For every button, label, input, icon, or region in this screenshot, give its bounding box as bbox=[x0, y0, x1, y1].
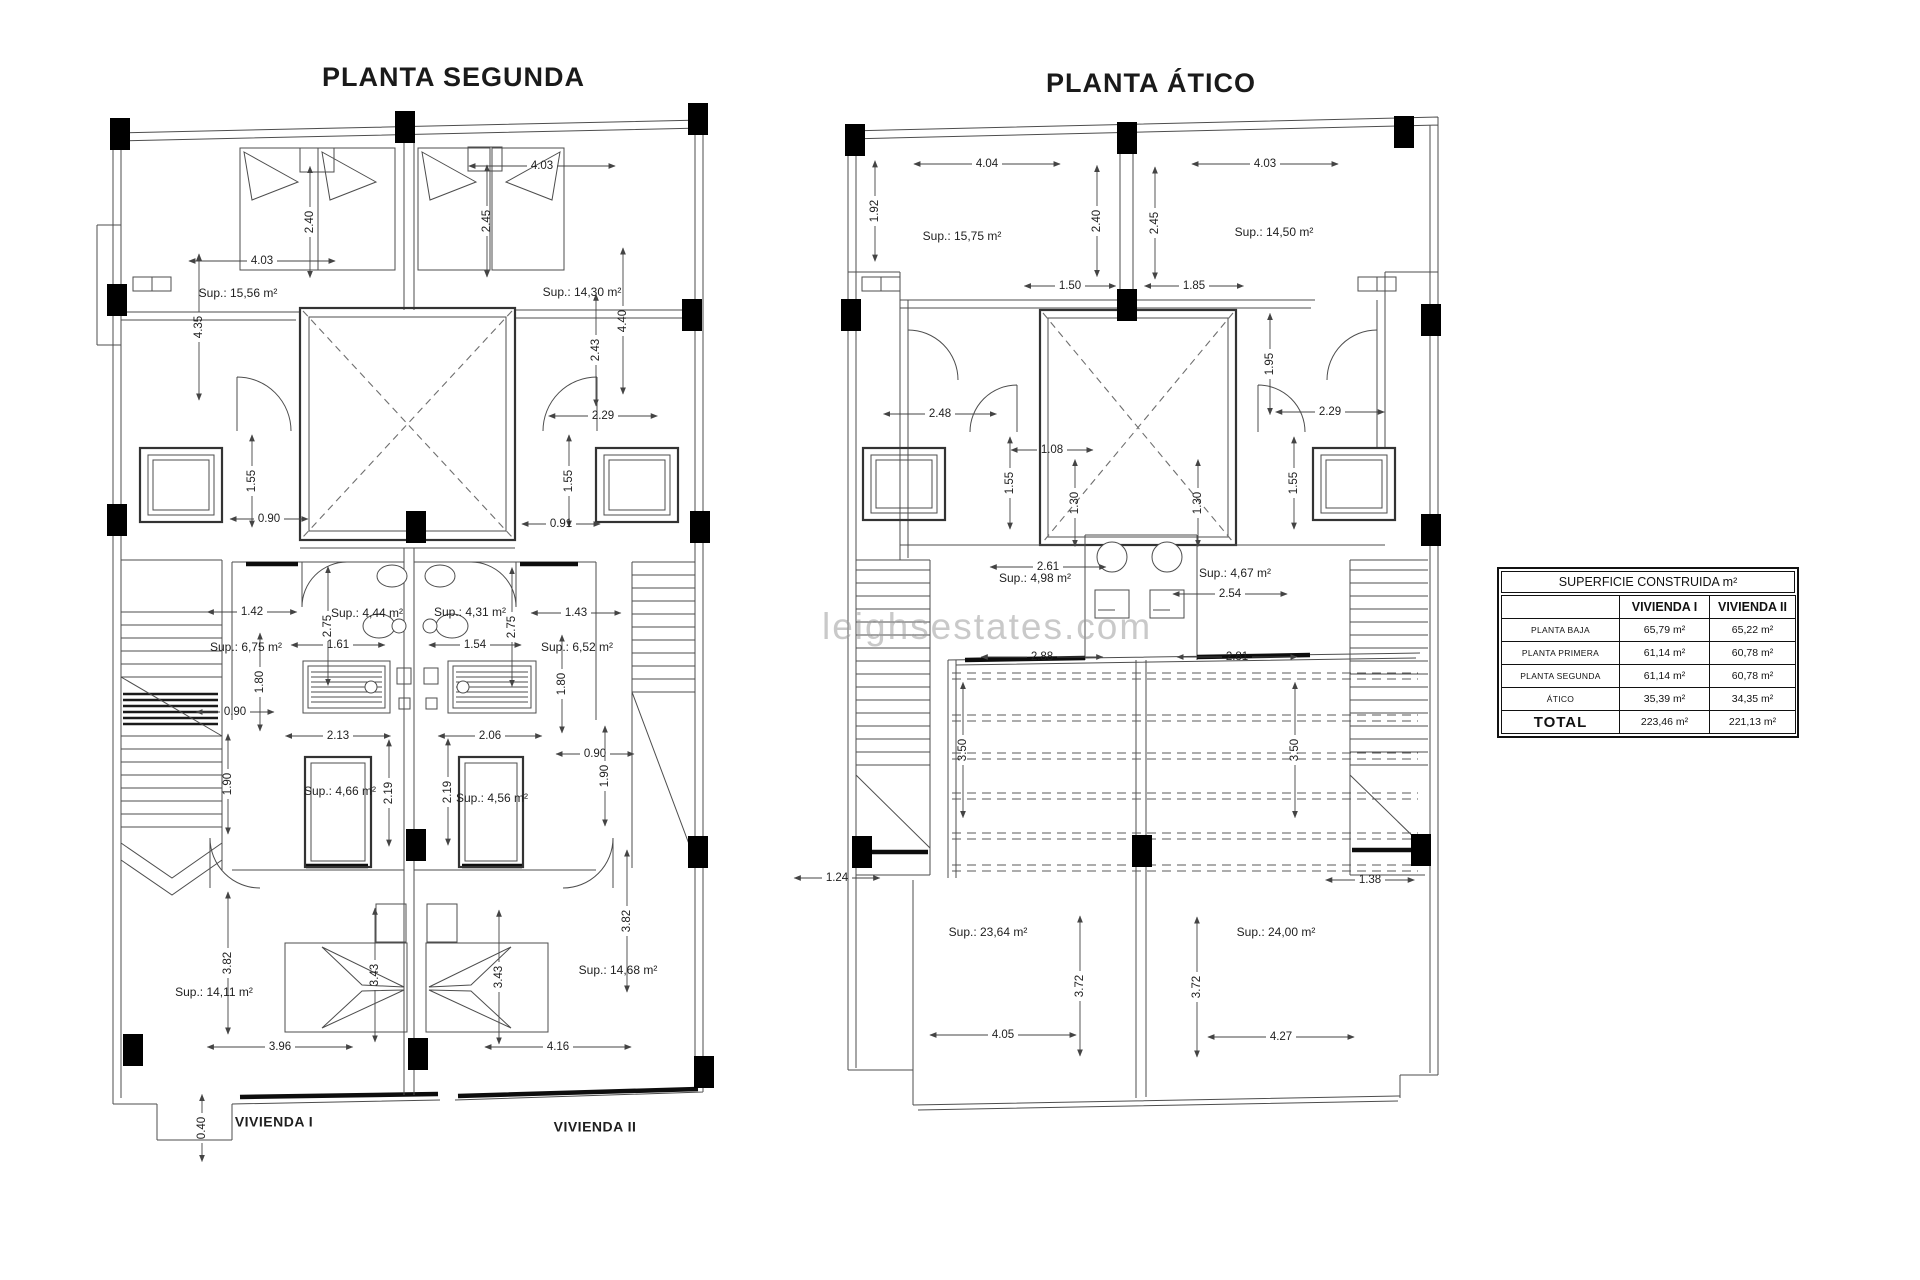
floor-plan-segunda bbox=[96, 92, 725, 1140]
dimension-label: 1.30 bbox=[1069, 460, 1081, 547]
area-label: Sup.: 6,52 m² bbox=[541, 640, 613, 654]
dimension-label: 1.55 bbox=[563, 435, 575, 527]
dimension-label: 1.42 bbox=[207, 606, 296, 618]
svg-text:4.27: 4.27 bbox=[1270, 1031, 1292, 1043]
dimension-label: 4.03 bbox=[1192, 158, 1338, 170]
svg-text:Sup.: 14,30 m²: Sup.: 14,30 m² bbox=[543, 285, 622, 299]
dimension-label: 3.43 bbox=[493, 910, 505, 1043]
svg-text:4.05: 4.05 bbox=[992, 1029, 1014, 1041]
svg-text:1.92: 1.92 bbox=[869, 200, 881, 222]
svg-text:Sup.: 14,50 m²: Sup.: 14,50 m² bbox=[1235, 225, 1314, 239]
dimension-label: 3.50 bbox=[957, 683, 969, 818]
svg-text:1.43: 1.43 bbox=[565, 607, 587, 619]
svg-text:3.50: 3.50 bbox=[1289, 739, 1301, 761]
svg-text:2.48: 2.48 bbox=[929, 408, 951, 420]
svg-text:VIVIENDA I: VIVIENDA I bbox=[235, 1114, 313, 1130]
dimension-label: 1.50 bbox=[1025, 280, 1116, 292]
svg-text:2.40: 2.40 bbox=[304, 211, 316, 233]
dimension-label: 3.50 bbox=[1289, 683, 1301, 818]
header-vivienda-2: VIVIENDA II bbox=[1710, 596, 1796, 619]
dimension-label: 3.72 bbox=[1191, 917, 1203, 1057]
dimension-label: 4.05 bbox=[930, 1029, 1076, 1041]
svg-text:3.43: 3.43 bbox=[493, 966, 505, 988]
area-label: Sup.: 4,56 m² bbox=[456, 791, 528, 805]
dimension-label: 2.54 bbox=[1173, 588, 1287, 600]
stairs-left bbox=[121, 560, 222, 895]
table-header-row: VIVIENDA I VIVIENDA II bbox=[1502, 596, 1796, 619]
svg-text:Sup.: 4,56 m²: Sup.: 4,56 m² bbox=[456, 791, 528, 805]
svg-text:2.88: 2.88 bbox=[1031, 651, 1053, 663]
svg-text:2.06: 2.06 bbox=[479, 730, 501, 742]
svg-text:1.95: 1.95 bbox=[1264, 353, 1276, 375]
table-row: ÁTICO 35,39 m² 34,35 m² bbox=[1502, 688, 1796, 711]
blueprint-canvas: PLANTA SEGUNDA PLANTA ÁTICO bbox=[0, 0, 1920, 1280]
elevator-left bbox=[140, 448, 222, 522]
svg-text:2.45: 2.45 bbox=[1149, 212, 1161, 234]
door-arcs bbox=[908, 330, 1377, 432]
area-label: Sup.: 14,30 m² bbox=[543, 285, 622, 299]
dimension-label: 3.43 bbox=[369, 908, 381, 1041]
svg-text:Sup.: 4,31 m²: Sup.: 4,31 m² bbox=[434, 605, 506, 619]
dimension-label: 3.82 bbox=[222, 892, 234, 1034]
stairs-right bbox=[1350, 560, 1428, 875]
area-label: Sup.: 6,75 m² bbox=[210, 640, 282, 654]
dimension-label: 1.85 bbox=[1145, 280, 1244, 292]
header-empty bbox=[1502, 596, 1620, 619]
svg-text:1.55: 1.55 bbox=[246, 470, 258, 492]
table-row: PLANTA PRIMERA 61,14 m² 60,78 m² bbox=[1502, 642, 1796, 665]
dimension-label: 4.03 bbox=[469, 160, 615, 172]
table-row-total: TOTAL 223,46 m² 221,13 m² bbox=[1502, 711, 1796, 734]
roof-dashed-lines bbox=[952, 673, 1418, 871]
svg-text:3.82: 3.82 bbox=[621, 910, 633, 932]
dimension-label: 4.40 bbox=[617, 248, 629, 394]
columns bbox=[830, 105, 1452, 879]
svg-text:3.50: 3.50 bbox=[957, 739, 969, 761]
svg-text:1.30: 1.30 bbox=[1192, 492, 1204, 514]
svg-text:2.40: 2.40 bbox=[1091, 210, 1103, 232]
svg-text:1.55: 1.55 bbox=[1004, 472, 1016, 494]
dimension-label: 0.40 bbox=[196, 1095, 208, 1162]
area-label: Sup.: 4,66 m² bbox=[304, 784, 376, 798]
name-label: VIVIENDA I bbox=[235, 1114, 313, 1130]
svg-text:0.90: 0.90 bbox=[258, 513, 280, 525]
elevator-left bbox=[863, 448, 945, 520]
dimension-label: 2.48 bbox=[884, 408, 997, 420]
header-vivienda-1: VIVIENDA I bbox=[1620, 596, 1710, 619]
svg-text:1.08: 1.08 bbox=[1041, 444, 1063, 456]
svg-text:4.03: 4.03 bbox=[1254, 158, 1276, 170]
name-label: VIVIENDA II bbox=[554, 1119, 637, 1135]
svg-text:4.03: 4.03 bbox=[531, 160, 553, 172]
svg-text:3.96: 3.96 bbox=[269, 1041, 291, 1053]
shower-right bbox=[448, 661, 536, 713]
table-row: PLANTA BAJA 65,79 m² 65,22 m² bbox=[1502, 619, 1796, 642]
svg-text:2.54: 2.54 bbox=[1219, 588, 1242, 600]
svg-text:Sup.: 24,00 m²: Sup.: 24,00 m² bbox=[1237, 925, 1316, 939]
table-row: PLANTA SEGUNDA 61,14 m² 60,78 m² bbox=[1502, 665, 1796, 688]
dimension-label: 1.90 bbox=[222, 734, 234, 834]
svg-text:1.80: 1.80 bbox=[556, 673, 568, 695]
columns bbox=[96, 92, 725, 1099]
dimension-label: 1.55 bbox=[246, 435, 258, 527]
shower-left bbox=[303, 661, 390, 713]
area-label: Sup.: 14,68 m² bbox=[579, 963, 658, 977]
elevator-right bbox=[1313, 448, 1395, 520]
closet-left bbox=[305, 757, 371, 867]
svg-text:2.29: 2.29 bbox=[1319, 406, 1341, 418]
dimension-label: 4.03 bbox=[189, 255, 335, 267]
svg-text:4.04: 4.04 bbox=[976, 158, 999, 170]
svg-text:Sup.: 4,44 m²: Sup.: 4,44 m² bbox=[331, 606, 403, 620]
svg-text:Sup.: 4,67 m²: Sup.: 4,67 m² bbox=[1199, 566, 1271, 580]
area-label: Sup.: 4,44 m² bbox=[331, 606, 403, 620]
elevator-right bbox=[596, 448, 678, 522]
svg-text:0.90: 0.90 bbox=[224, 706, 246, 718]
bed-double-right bbox=[426, 943, 548, 1032]
svg-text:1.80: 1.80 bbox=[254, 671, 266, 693]
svg-text:4.03: 4.03 bbox=[251, 255, 273, 267]
area-label: Sup.: 14,50 m² bbox=[1235, 225, 1314, 239]
svg-text:Sup.: 15,56 m²: Sup.: 15,56 m² bbox=[199, 286, 278, 300]
svg-text:2.19: 2.19 bbox=[442, 781, 454, 803]
dimension-label: 2.45 bbox=[481, 165, 493, 277]
dimension-label: 4.35 bbox=[193, 254, 205, 400]
dimension-label: 0.91 bbox=[522, 518, 600, 530]
dimension-label: 1.54 bbox=[429, 639, 521, 651]
svg-text:3.72: 3.72 bbox=[1191, 976, 1203, 998]
svg-text:0.90: 0.90 bbox=[584, 748, 606, 760]
svg-text:1.90: 1.90 bbox=[599, 765, 611, 787]
dimension-label: 1.61 bbox=[291, 639, 384, 651]
area-label: Sup.: 15,56 m² bbox=[199, 286, 278, 300]
table-title: SUPERFICIE CONSTRUIDA m² bbox=[1501, 571, 1795, 593]
svg-text:Sup.: 4,98 m²: Sup.: 4,98 m² bbox=[999, 571, 1071, 585]
dimension-label: 2.19 bbox=[442, 739, 454, 845]
svg-text:Sup.: 14,11 m²: Sup.: 14,11 m² bbox=[175, 985, 253, 999]
dimension-label: 1.55 bbox=[1288, 437, 1300, 529]
dimension-label: 1.43 bbox=[531, 607, 620, 619]
area-label: Sup.: 15,75 m² bbox=[923, 229, 1002, 243]
svg-text:2.45: 2.45 bbox=[481, 210, 493, 232]
svg-text:4.35: 4.35 bbox=[193, 316, 205, 338]
svg-text:1.50: 1.50 bbox=[1059, 280, 1081, 292]
svg-text:0.91: 0.91 bbox=[550, 518, 572, 530]
svg-text:2.43: 2.43 bbox=[590, 339, 602, 361]
svg-text:Sup.: 23,64 m²: Sup.: 23,64 m² bbox=[949, 925, 1028, 939]
surface-table: SUPERFICIE CONSTRUIDA m² VIVIENDA I VIVI… bbox=[1497, 567, 1799, 738]
area-label: Sup.: 14,11 m² bbox=[175, 985, 253, 999]
closet-right bbox=[459, 757, 523, 867]
bed-twin-left bbox=[240, 148, 395, 270]
svg-text:Sup.: 6,75 m²: Sup.: 6,75 m² bbox=[210, 640, 282, 654]
dimension-label: 3.96 bbox=[207, 1041, 352, 1053]
svg-text:3.43: 3.43 bbox=[369, 964, 381, 986]
svg-text:3.72: 3.72 bbox=[1074, 975, 1086, 997]
area-label: Sup.: 23,64 m² bbox=[949, 925, 1028, 939]
area-label: Sup.: 4,67 m² bbox=[1199, 566, 1271, 580]
dimension-label: 1.30 bbox=[1192, 460, 1204, 547]
dimension-label: 1.24 bbox=[794, 872, 879, 884]
dimension-label: 4.16 bbox=[485, 1041, 631, 1053]
watermark: leighsestates.com bbox=[822, 606, 1152, 648]
svg-text:1.55: 1.55 bbox=[563, 470, 575, 492]
dimension-label: 1.92 bbox=[869, 161, 881, 261]
svg-text:2.13: 2.13 bbox=[327, 730, 349, 742]
dimension-label: 1.55 bbox=[1004, 437, 1016, 529]
stairs-right bbox=[632, 562, 695, 868]
svg-text:Sup.: 15,75 m²: Sup.: 15,75 m² bbox=[923, 229, 1002, 243]
svg-text:2.29: 2.29 bbox=[592, 410, 614, 422]
dimension-label: 2.19 bbox=[383, 740, 395, 846]
dimension-label: 2.45 bbox=[1149, 167, 1161, 279]
area-label: Sup.: 24,00 m² bbox=[1237, 925, 1316, 939]
svg-text:1.42: 1.42 bbox=[241, 606, 263, 618]
dimension-label: 2.40 bbox=[1091, 166, 1103, 277]
area-label: Sup.: 4,31 m² bbox=[434, 605, 506, 619]
svg-text:2.75: 2.75 bbox=[506, 616, 518, 638]
svg-text:1.54: 1.54 bbox=[464, 639, 487, 651]
dimension-label: 1.38 bbox=[1326, 874, 1414, 886]
dimension-label: 1.95 bbox=[1264, 314, 1276, 415]
svg-text:2.19: 2.19 bbox=[383, 782, 395, 804]
svg-text:1.85: 1.85 bbox=[1183, 280, 1205, 292]
dimension-label: 0.90 bbox=[230, 513, 308, 525]
svg-text:1.90: 1.90 bbox=[222, 773, 234, 795]
dimension-label: 0.90 bbox=[196, 706, 274, 718]
svg-text:4.16: 4.16 bbox=[547, 1041, 569, 1053]
svg-text:Sup.: 6,52 m²: Sup.: 6,52 m² bbox=[541, 640, 613, 654]
svg-text:Sup.: 4,66 m²: Sup.: 4,66 m² bbox=[304, 784, 376, 798]
dimension-label: 0.90 bbox=[556, 748, 634, 760]
svg-text:Sup.: 14,68 m²: Sup.: 14,68 m² bbox=[579, 963, 658, 977]
svg-text:4.40: 4.40 bbox=[617, 310, 629, 332]
bathroom-fixtures bbox=[363, 565, 468, 638]
svg-text:0.40: 0.40 bbox=[196, 1117, 208, 1139]
dimension-label: 2.75 bbox=[322, 567, 334, 686]
dimension-label: 4.27 bbox=[1208, 1031, 1354, 1043]
svg-text:1.38: 1.38 bbox=[1359, 874, 1381, 886]
svg-text:2.81: 2.81 bbox=[1226, 651, 1248, 663]
bed-double-left bbox=[285, 943, 407, 1032]
svg-text:1.30: 1.30 bbox=[1069, 492, 1081, 514]
svg-text:3.82: 3.82 bbox=[222, 952, 234, 974]
dimension-label: 2.13 bbox=[286, 730, 391, 742]
dimension-label: 1.90 bbox=[599, 726, 611, 826]
area-label: Sup.: 4,98 m² bbox=[999, 571, 1071, 585]
dimension-label: 2.29 bbox=[1276, 406, 1384, 418]
dimension-label: 2.43 bbox=[590, 294, 602, 405]
stair-core bbox=[300, 308, 515, 540]
dimension-label: 2.29 bbox=[549, 410, 657, 422]
dimension-label: 2.06 bbox=[438, 730, 541, 742]
dimension-label: 1.08 bbox=[1011, 444, 1093, 456]
dimension-label: 4.04 bbox=[914, 158, 1060, 170]
svg-text:1.61: 1.61 bbox=[327, 639, 349, 651]
door-arcs bbox=[210, 377, 613, 888]
svg-text:VIVIENDA II: VIVIENDA II bbox=[554, 1119, 637, 1135]
svg-text:1.24: 1.24 bbox=[826, 872, 849, 884]
svg-text:1.55: 1.55 bbox=[1288, 472, 1300, 494]
